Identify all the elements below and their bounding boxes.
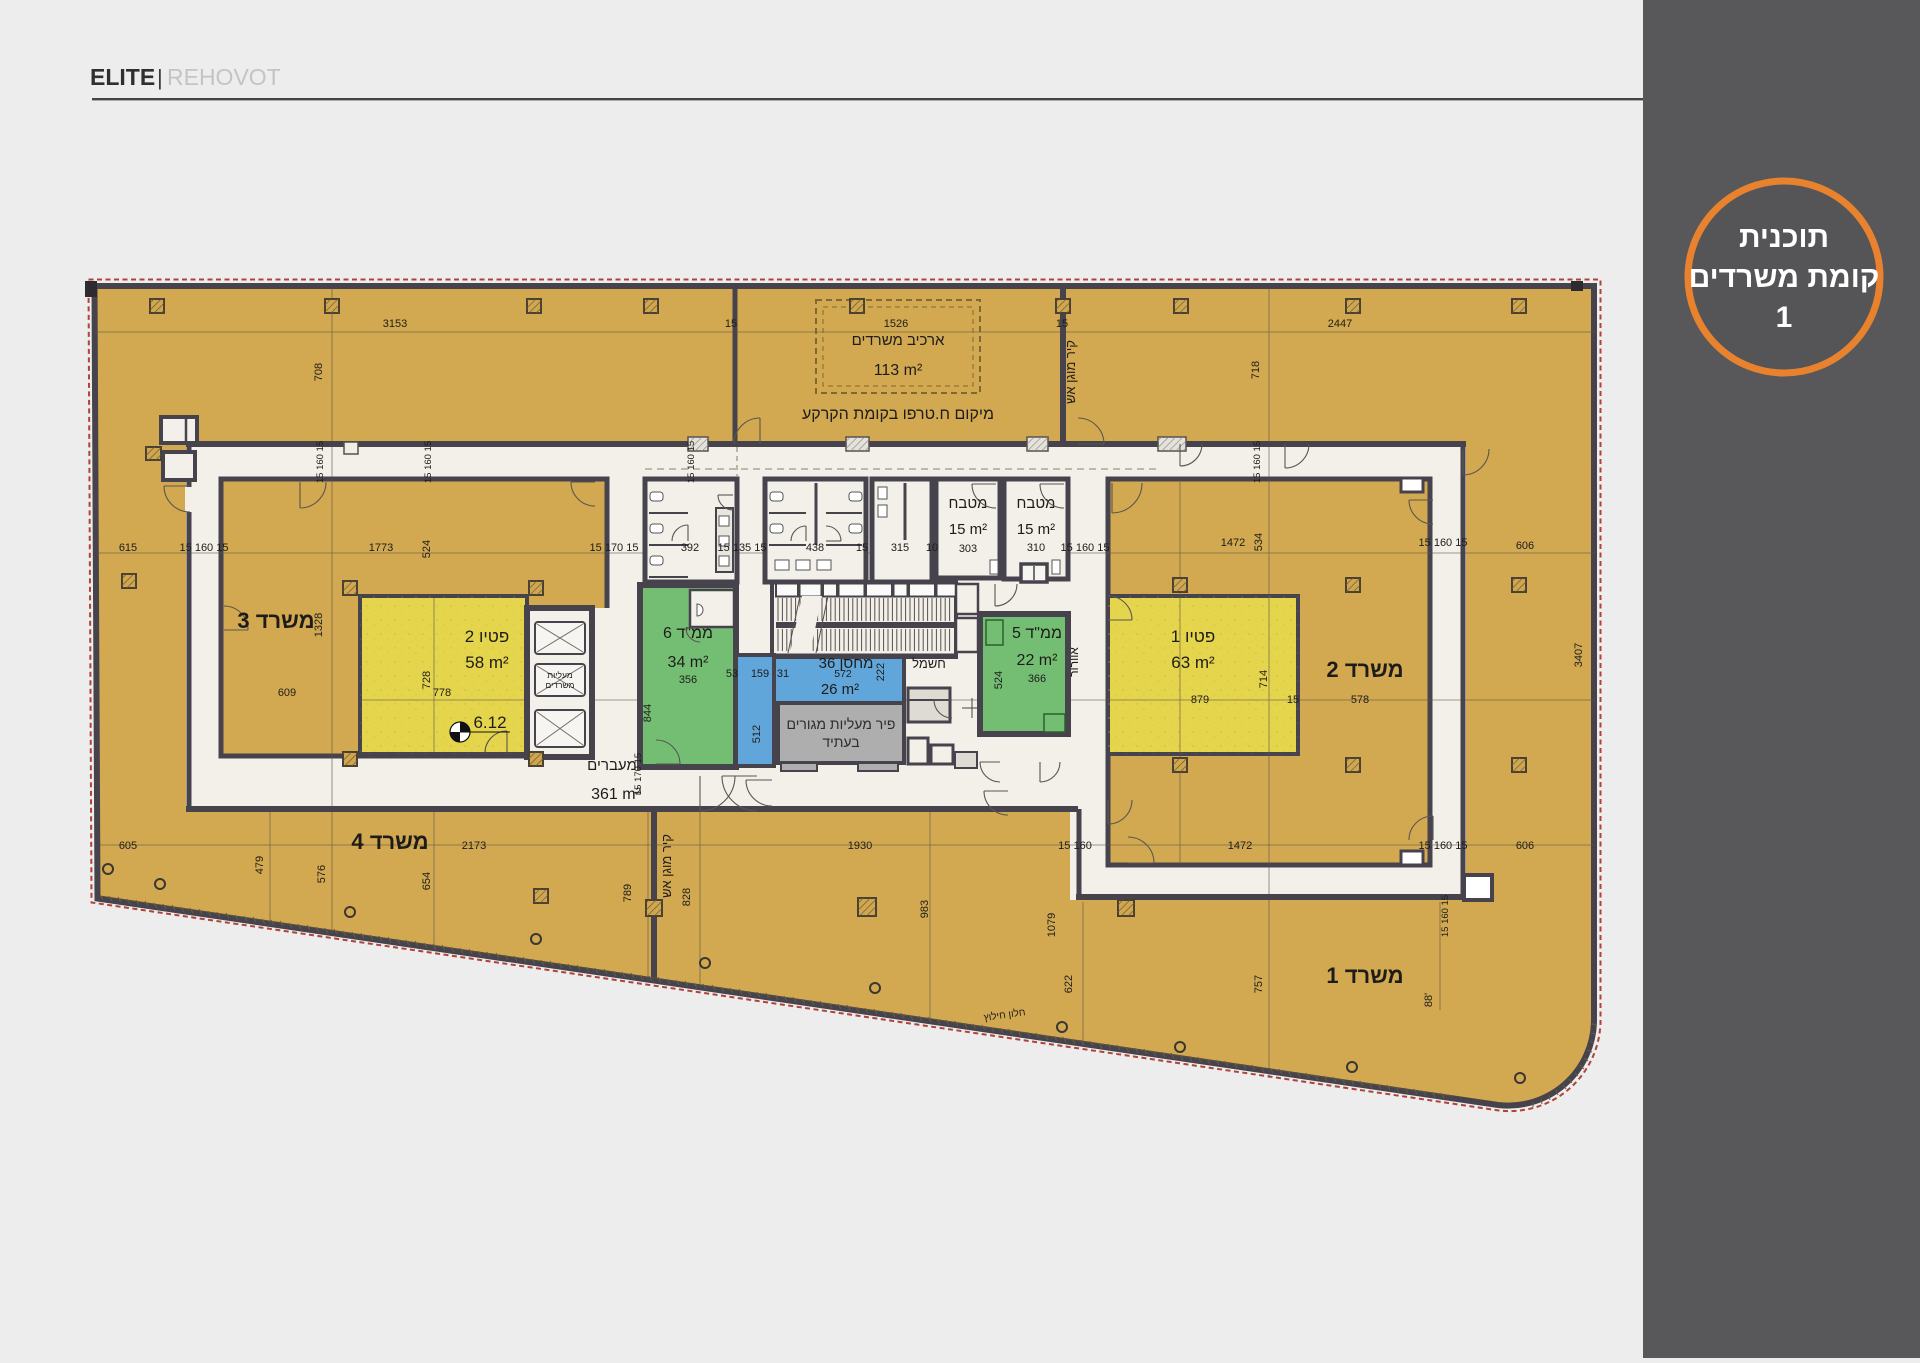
svg-text:757: 757 [1253,975,1265,993]
svg-text:אוורור: אוורור [1067,647,1081,677]
svg-text:534: 534 [1253,533,1265,551]
svg-text:3153: 3153 [383,318,407,330]
svg-text:1930: 1930 [848,840,872,852]
svg-text:88': 88' [1423,993,1435,1007]
svg-text:בעתיד: בעתיד [822,734,859,750]
svg-text:פטיו 1: פטיו 1 [1171,627,1216,646]
svg-text:1472: 1472 [1228,840,1252,852]
svg-text:1773: 1773 [369,542,393,554]
svg-text:512: 512 [751,725,763,743]
svg-text:קיר מוגן אש: קיר מוגן אש [659,834,674,898]
svg-text:ELITE: ELITE [90,64,155,90]
svg-text:524: 524 [421,540,433,558]
svg-text:מיקום ח.טרפו בקומת הקרקע: מיקום ח.טרפו בקומת הקרקע [802,406,994,423]
svg-text:622: 622 [1063,975,1075,993]
svg-text:605: 605 [119,840,137,852]
svg-text:53: 53 [726,668,738,680]
svg-text:654: 654 [421,872,433,890]
svg-text:15 160 15: 15 160 15 [1061,542,1110,554]
svg-text:714: 714 [1258,670,1270,688]
svg-text:6.12: 6.12 [473,713,506,732]
svg-text:3407: 3407 [1573,643,1585,667]
svg-text:615: 615 [119,542,137,554]
svg-text:משרד 1: משרד 1 [1326,963,1403,988]
svg-text:578: 578 [1351,694,1369,706]
svg-text:718: 718 [1250,361,1262,379]
svg-text:ארכיב משרדים: ארכיב משרדים [852,332,945,349]
svg-text:10: 10 [926,542,938,554]
svg-text:ממ"ד 5: ממ"ד 5 [1012,625,1062,642]
svg-text:303: 303 [959,543,977,555]
svg-text:משרד 2: משרד 2 [1326,657,1403,682]
svg-text:222: 222 [875,663,887,681]
svg-text:15: 15 [1056,318,1068,330]
svg-text:15 160 15: 15 160 15 [686,441,697,483]
svg-text:1079: 1079 [1046,913,1058,937]
svg-text:438: 438 [806,542,824,554]
svg-text:572: 572 [834,668,852,680]
svg-text:58 m²: 58 m² [465,653,509,672]
svg-text:תוכנית: תוכנית [1739,221,1829,254]
svg-text:15: 15 [725,318,737,330]
svg-text:34 m²: 34 m² [668,654,710,671]
svg-text:15 160: 15 160 [1058,840,1092,852]
svg-text:15 m²: 15 m² [1017,521,1055,538]
svg-text:310: 310 [1027,542,1045,554]
svg-text:15: 15 [856,542,868,554]
svg-text:15 170 15: 15 170 15 [590,542,639,554]
svg-text:315: 315 [891,542,909,554]
svg-text:159: 159 [751,668,769,680]
svg-text:789: 789 [622,884,634,902]
svg-text:606: 606 [1516,840,1534,852]
svg-text:משרד 3: משרד 3 [237,608,314,633]
svg-text:479: 479 [254,856,266,874]
svg-text:חשמל: חשמל [912,656,946,671]
svg-text:15 135 15: 15 135 15 [718,542,767,554]
svg-text:609: 609 [278,687,296,699]
svg-text:משרד 4: משרד 4 [351,829,428,854]
svg-text:פיר מעליות מגורים: פיר מעליות מגורים [787,716,896,732]
svg-text:828: 828 [681,888,693,906]
svg-text:קיר מוגן אש: קיר מוגן אש [1063,340,1078,404]
svg-text:15 m²: 15 m² [949,521,987,538]
svg-text:356: 356 [679,674,697,686]
svg-text:22 m²: 22 m² [1017,652,1059,669]
svg-text:15 160 15: 15 160 15 [423,441,434,483]
svg-text:31: 31 [777,668,789,680]
svg-text:113 m²: 113 m² [874,362,923,379]
svg-text:879: 879 [1191,694,1209,706]
svg-text:1472: 1472 [1221,537,1245,549]
svg-text:15 160 15: 15 160 15 [1419,840,1468,852]
svg-text:606: 606 [1516,540,1534,552]
svg-text:REHOVOT: REHOVOT [167,64,281,90]
svg-text:983: 983 [919,900,931,918]
svg-text:|: | [157,65,163,90]
svg-text:15: 15 [1287,694,1299,706]
svg-text:778: 778 [433,687,451,699]
svg-text:1526: 1526 [884,318,908,330]
svg-text:משרדים: משרדים [545,680,574,690]
svg-text:63 m²: 63 m² [1171,653,1215,672]
svg-text:קומת משרדים: קומת משרדים [1689,261,1880,294]
svg-text:392: 392 [681,542,699,554]
svg-text:26 m²: 26 m² [821,681,859,698]
svg-text:366: 366 [1028,673,1046,685]
svg-text:844: 844 [642,704,654,722]
svg-text:15 160 15: 15 160 15 [1440,895,1451,937]
svg-text:708: 708 [313,363,325,381]
svg-text:728: 728 [421,671,433,689]
svg-text:2447: 2447 [1328,318,1352,330]
svg-text:מעליות: מעליות [547,670,573,680]
svg-text:פטיו 2: פטיו 2 [465,627,510,646]
svg-text:1328: 1328 [313,613,325,637]
svg-text:2173: 2173 [462,840,486,852]
svg-text:מעברים: מעברים [587,757,637,774]
svg-text:15 160 15: 15 160 15 [1252,441,1263,483]
svg-text:576: 576 [316,865,328,883]
svg-text:361 m²: 361 m² [591,786,641,803]
svg-text:524: 524 [993,671,1005,689]
svg-text:1: 1 [1776,301,1793,334]
svg-text:15 160 15: 15 160 15 [180,542,229,554]
svg-text:15 160 15: 15 160 15 [1419,537,1468,549]
svg-text:15 160 15: 15 160 15 [315,441,326,483]
